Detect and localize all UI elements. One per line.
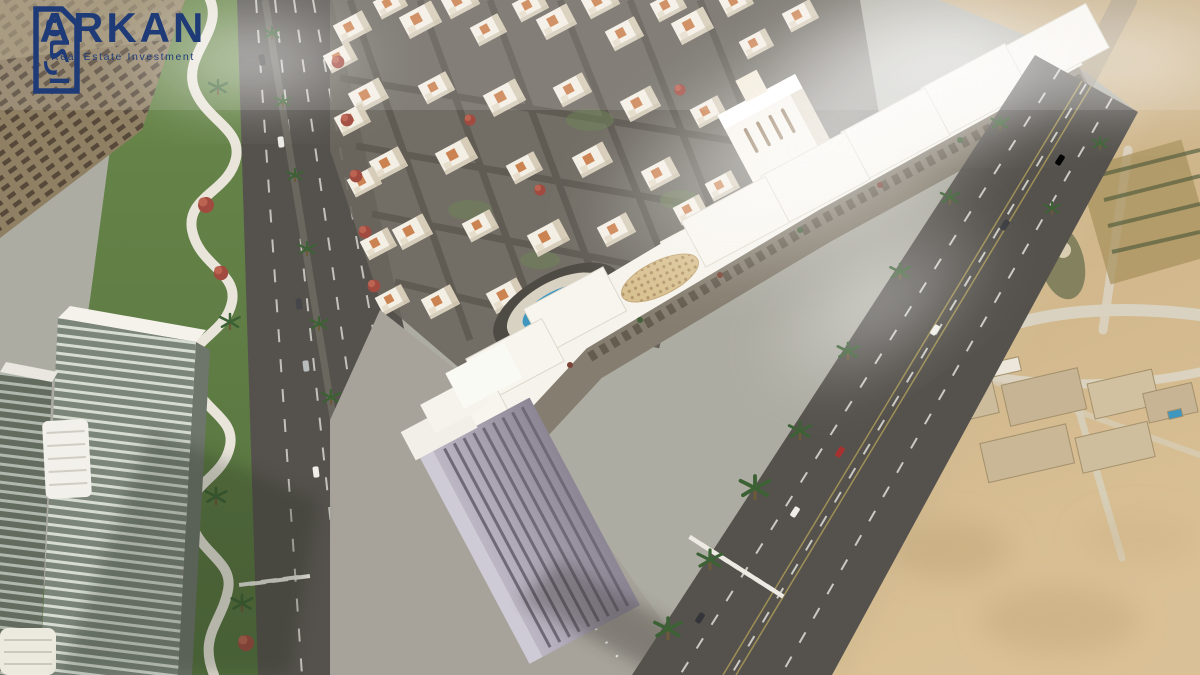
- aerial-render-image: اركان ARKAN Real Estate Investment: [0, 0, 1200, 675]
- red-tree: [464, 114, 475, 125]
- arkan-logo: اركان ARKAN Real Estate Investment: [28, 4, 218, 63]
- red-tree: [198, 197, 214, 213]
- arkan-logo-mark-icon: اركان: [28, 4, 84, 96]
- scene-render: [0, 0, 1200, 675]
- white-podium: [0, 628, 56, 675]
- white-balcony-stack: [42, 419, 92, 499]
- red-tree: [214, 266, 228, 280]
- red-tree: [359, 226, 372, 239]
- red-tree: [534, 184, 545, 195]
- red-tree: [350, 170, 363, 183]
- red-tree: [341, 114, 354, 127]
- logo-arabic-text: اركان: [44, 17, 73, 85]
- red-tree: [368, 280, 381, 293]
